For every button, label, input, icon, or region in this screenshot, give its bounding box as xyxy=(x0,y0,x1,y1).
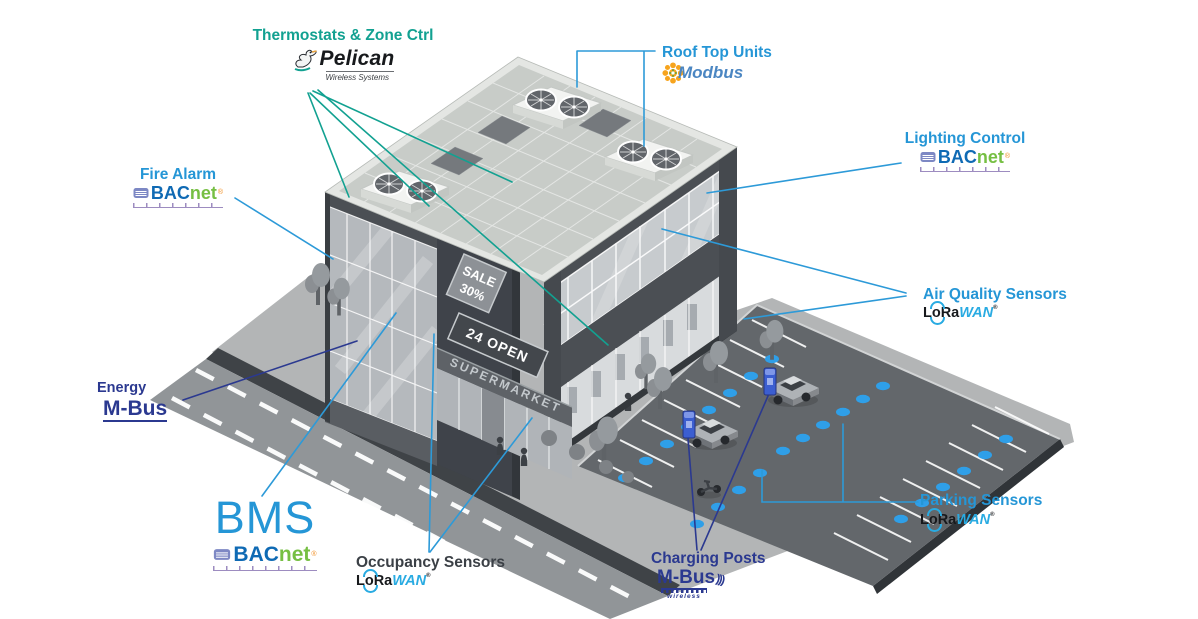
bms-title: BMS xyxy=(206,492,324,544)
bacnet-reg: ® xyxy=(311,551,316,558)
parking-label-group: Parking Sensors LoRaWAN® xyxy=(920,492,1042,528)
rooftop-label-group: Roof Top Units Modbus xyxy=(662,44,772,84)
occupancy-title: Occupancy Sensors xyxy=(356,554,505,572)
charging-title: Charging Posts xyxy=(651,550,766,568)
lorawan-logo: LoRaWAN® xyxy=(920,512,1042,529)
bacnet-net: net xyxy=(190,184,217,202)
lighting-title: Lighting Control xyxy=(880,130,1050,148)
bacnet-bus-line xyxy=(133,203,223,208)
lorawan-lora: LoRa xyxy=(920,512,956,529)
pelican-wordmark: Pelican xyxy=(320,47,395,70)
lorawan-logo: LoRaWAN® xyxy=(923,305,1067,322)
occupancy-label-group: Occupancy Sensors LoRaWAN® xyxy=(356,554,505,589)
fire-alarm-title: Fire Alarm xyxy=(118,166,238,184)
modbus-wordmark: Modbus xyxy=(678,63,743,83)
building-left-tower xyxy=(325,192,437,466)
lorawan-reg: ® xyxy=(993,305,997,311)
lorawan-wan: WAN xyxy=(392,573,426,589)
bacnet-net: net xyxy=(977,148,1004,166)
mbus-wireless-logo: M-Bus))) wireless xyxy=(657,568,724,601)
fire-alarm-callout-line xyxy=(235,198,333,259)
bacnet-bac: BAC xyxy=(233,544,279,565)
radio-waves-icon: ))) xyxy=(715,572,726,587)
bacnet-logo: BACnet® xyxy=(920,148,1010,172)
bacnet-bac: BAC xyxy=(151,184,190,202)
pedestrian-silhouette xyxy=(521,448,527,466)
mbus-wireless-text: wireless xyxy=(661,593,707,600)
pelican-bird-icon xyxy=(292,47,318,73)
bacnet-logo: BACnet® xyxy=(213,544,316,571)
bacnet-reg: ® xyxy=(1005,153,1010,160)
modbus-logo: Modbus xyxy=(662,62,772,84)
lorawan-lora: LoRa xyxy=(923,305,959,322)
lorawan-lora: LoRa xyxy=(356,573,392,590)
parking-title: Parking Sensors xyxy=(920,492,1042,510)
thermostats-label-group: Thermostats & Zone Ctrl Pelican Wireless… xyxy=(250,27,436,82)
pelican-tagline: Wireless Systems xyxy=(326,71,395,82)
lorawan-wan: WAN xyxy=(956,512,990,528)
charging-post-icon xyxy=(683,411,695,438)
bacnet-bac: BAC xyxy=(938,148,977,166)
air-quality-label-group: Air Quality Sensors LoRaWAN® xyxy=(923,286,1067,321)
bacnet-net: net xyxy=(279,544,311,565)
bacnet-bus-line xyxy=(213,566,316,571)
ashrae-icon xyxy=(920,151,936,163)
ashrae-icon xyxy=(213,548,231,561)
air-quality-title: Air Quality Sensors xyxy=(923,286,1067,304)
lorawan-reg: ® xyxy=(426,573,430,579)
smart-building-diagram: SALE 30% 24 OPEN SUPERMARKET xyxy=(0,0,1198,619)
energy-title: Energy xyxy=(97,380,167,397)
lorawan-logo: LoRaWAN® xyxy=(356,573,505,590)
bacnet-bus-line xyxy=(920,167,1010,172)
mbus-logo: M-Bus xyxy=(103,398,167,422)
thermostats-title: Thermostats & Zone Ctrl xyxy=(250,27,436,45)
charging-label-group: Charging Posts M-Bus))) wireless xyxy=(651,550,766,604)
rooftop-title: Roof Top Units xyxy=(662,44,772,62)
energy-label-group: Energy M-Bus xyxy=(97,380,167,422)
bacnet-logo: BACnet® xyxy=(133,184,223,208)
bms-label-group: BMS BACnet® xyxy=(206,492,324,571)
lorawan-reg: ® xyxy=(990,512,994,518)
pelican-logo: Pelican Wireless Systems xyxy=(250,47,436,82)
ashrae-icon xyxy=(133,187,149,199)
fire-alarm-label-group: Fire Alarm BACnet® xyxy=(118,166,238,208)
bacnet-reg: ® xyxy=(218,189,223,196)
charging-post-icon xyxy=(764,368,776,395)
mbus-wordmark: M-Bus xyxy=(657,568,715,588)
lorawan-wan: WAN xyxy=(959,305,993,321)
lighting-label-group: Lighting Control BACnet® xyxy=(880,130,1050,172)
pedestrian-silhouette xyxy=(497,437,503,455)
